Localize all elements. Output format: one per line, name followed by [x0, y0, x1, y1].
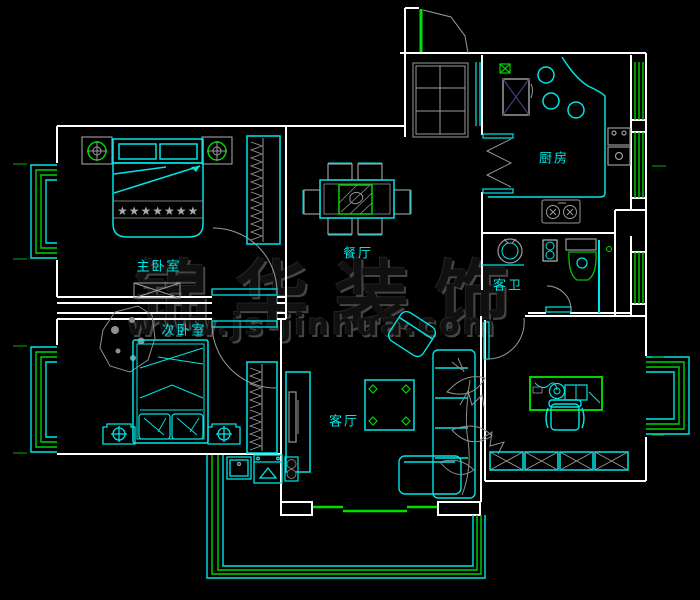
plant: [100, 306, 155, 372]
mouse: [550, 384, 565, 399]
second-wardrobe: [247, 362, 277, 453]
master-door-leaf: [212, 289, 277, 295]
chair-edges: [303, 163, 411, 235]
nightstand-lamp-left: [82, 137, 112, 164]
room-label-living: 客厅: [329, 411, 359, 430]
balcony-sliding-door: [313, 507, 437, 511]
washbasin: [482, 239, 524, 265]
study-furniture: [484, 318, 628, 470]
bedside-bench: [134, 283, 180, 298]
counter-circles: [538, 67, 584, 118]
window-stripes: [635, 62, 643, 304]
desk-chair: [546, 400, 584, 430]
bathroom-door: [546, 286, 571, 312]
vanity-cabinet: [543, 240, 557, 261]
svg-text:★★★★★★★: ★★★★★★★: [117, 204, 199, 218]
room-label-dining: 餐厅: [343, 243, 373, 262]
master-bed: [113, 139, 203, 237]
water-heater: [608, 128, 630, 165]
flower-decor: [440, 358, 504, 495]
room-label-master-bedroom: 主卧室: [136, 256, 181, 275]
washing-machine: [254, 455, 282, 483]
floorplan-page: 锦华装饰 www.js-jinhua.com: [0, 0, 700, 600]
nightstand-left: [103, 424, 135, 444]
second-door-arc: [212, 324, 276, 388]
corner-motifs: [369, 385, 410, 425]
nightstand-right: [208, 424, 240, 444]
laundry-area: [227, 455, 298, 483]
sofa: [399, 350, 475, 498]
laundry-sink: [227, 457, 251, 479]
bedroom-doors: [212, 228, 277, 388]
double-basin: [285, 457, 298, 481]
bed-runner: ★★★★★★★: [113, 201, 203, 218]
drain: [607, 247, 612, 252]
entry-door: [421, 9, 468, 53]
computer-desk: [530, 377, 602, 410]
room-label-second-bedroom: 次卧室: [161, 320, 206, 339]
nightstand-lamp-right: [202, 137, 232, 164]
master-wardrobe: [247, 136, 280, 244]
tv: [289, 392, 296, 442]
toilet: [566, 239, 596, 280]
folding-door: [483, 134, 513, 193]
wall-face-line: [476, 62, 480, 126]
kitchen-fixtures: [483, 57, 630, 223]
second-bed: [133, 340, 208, 443]
flue: [500, 64, 510, 73]
floorplan-canvas: ★★★★★★★: [0, 0, 700, 600]
dining-table: [320, 180, 394, 218]
door-swing-arc: [423, 10, 468, 53]
armchair: [386, 309, 438, 359]
shoe-cabinet: [413, 63, 468, 137]
master-door-arc: [213, 228, 277, 292]
kitchen-counter: [488, 57, 605, 197]
gas-stove: [542, 200, 580, 223]
bay-window-master: [31, 165, 57, 258]
room-label-bathroom: 客卫: [493, 275, 523, 294]
second-door-leaf: [212, 321, 277, 327]
room-label-kitchen: 厨房: [539, 148, 569, 167]
bay-window-study: [646, 357, 689, 434]
storage-cabinets: [490, 452, 628, 470]
refrigerator: [503, 79, 533, 115]
bay-window-second: [31, 347, 57, 452]
living-room-furniture: [286, 309, 504, 498]
dining-set: [303, 163, 411, 235]
study-door: [484, 318, 524, 359]
coffee-table: [365, 380, 414, 430]
balcony: [207, 455, 485, 578]
